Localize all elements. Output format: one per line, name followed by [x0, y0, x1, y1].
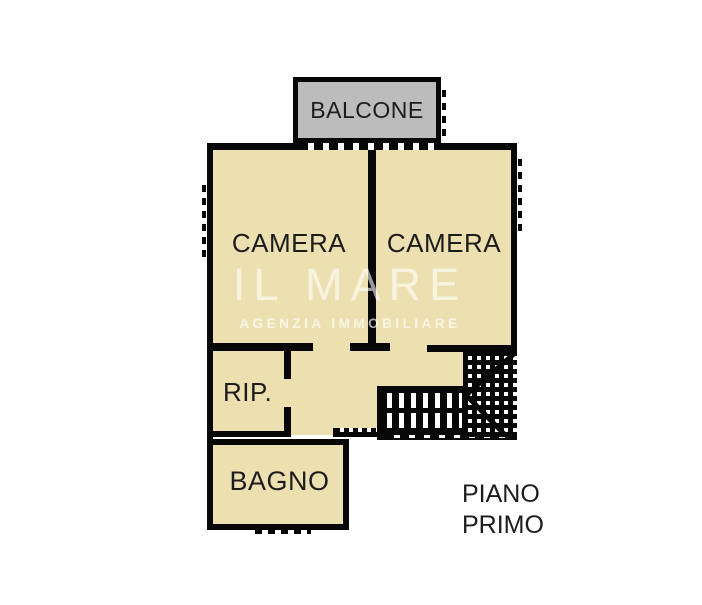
floor-caption: PIANO PRIMO [462, 479, 544, 541]
room-fill-stairs-landing [377, 348, 465, 388]
stair-tick-marks [335, 428, 377, 432]
stair-tread-row [380, 413, 462, 428]
watermark-tagline: AGENZIA IMMOBILIARE [190, 316, 510, 331]
window-dash-bagno-bottom [255, 530, 311, 534]
window-dash-right-wall [518, 155, 522, 231]
wall-cameras-bottom-left [207, 343, 313, 351]
floor-caption-line2: PRIMO [462, 510, 544, 541]
wall-bagno-bottom [207, 524, 349, 530]
stairwell-diagonal-lines [463, 351, 517, 437]
wall-rip-right-upper [284, 351, 291, 379]
room-label-camera-right: CAMERA [378, 228, 510, 259]
stair-start-ticks [333, 428, 379, 437]
wall-rip-bottom [207, 431, 289, 437]
stair-treads [377, 386, 465, 435]
agency-watermark: IL MARE AGENZIA IMMOBILIARE [190, 262, 510, 331]
wall-right-cameras [511, 143, 517, 352]
stair-tread-row [380, 393, 462, 408]
floorplan-canvas: BALCONE IL MARE AGENZIA IMMOBILIARE CAME [0, 0, 702, 605]
floor-caption-line1: PIANO [462, 479, 544, 510]
wall-bagno-top [207, 439, 349, 445]
wall-cameras-bottom-mid [350, 343, 390, 351]
room-label-camera-left: CAMERA [214, 228, 364, 259]
watermark-title: IL MARE [190, 262, 510, 307]
room-label-bagno: BAGNO [213, 466, 346, 497]
room-balcone: BALCONE [293, 77, 441, 143]
window-dash-balcone-right [442, 86, 446, 136]
room-label-balcone: BALCONE [310, 97, 423, 124]
balcony-door-dashes [299, 143, 437, 150]
room-label-rip: RIP. [223, 377, 272, 408]
window-dash-left-wall [202, 185, 206, 257]
stairwell-hatch-area [463, 351, 517, 437]
